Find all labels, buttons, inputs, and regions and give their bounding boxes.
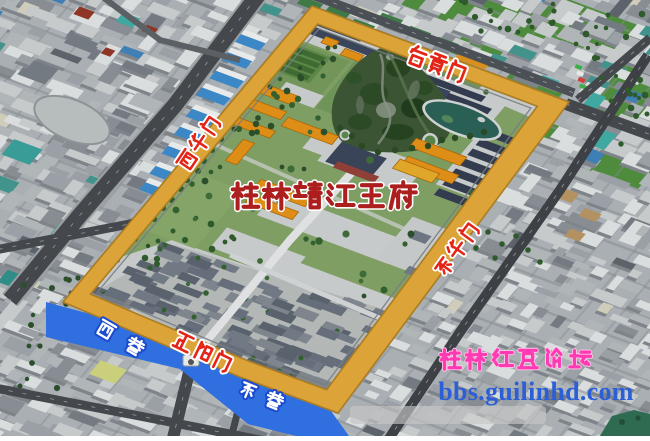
svg-text:bbs.guilinhd.com: bbs.guilinhd.com	[438, 377, 634, 406]
